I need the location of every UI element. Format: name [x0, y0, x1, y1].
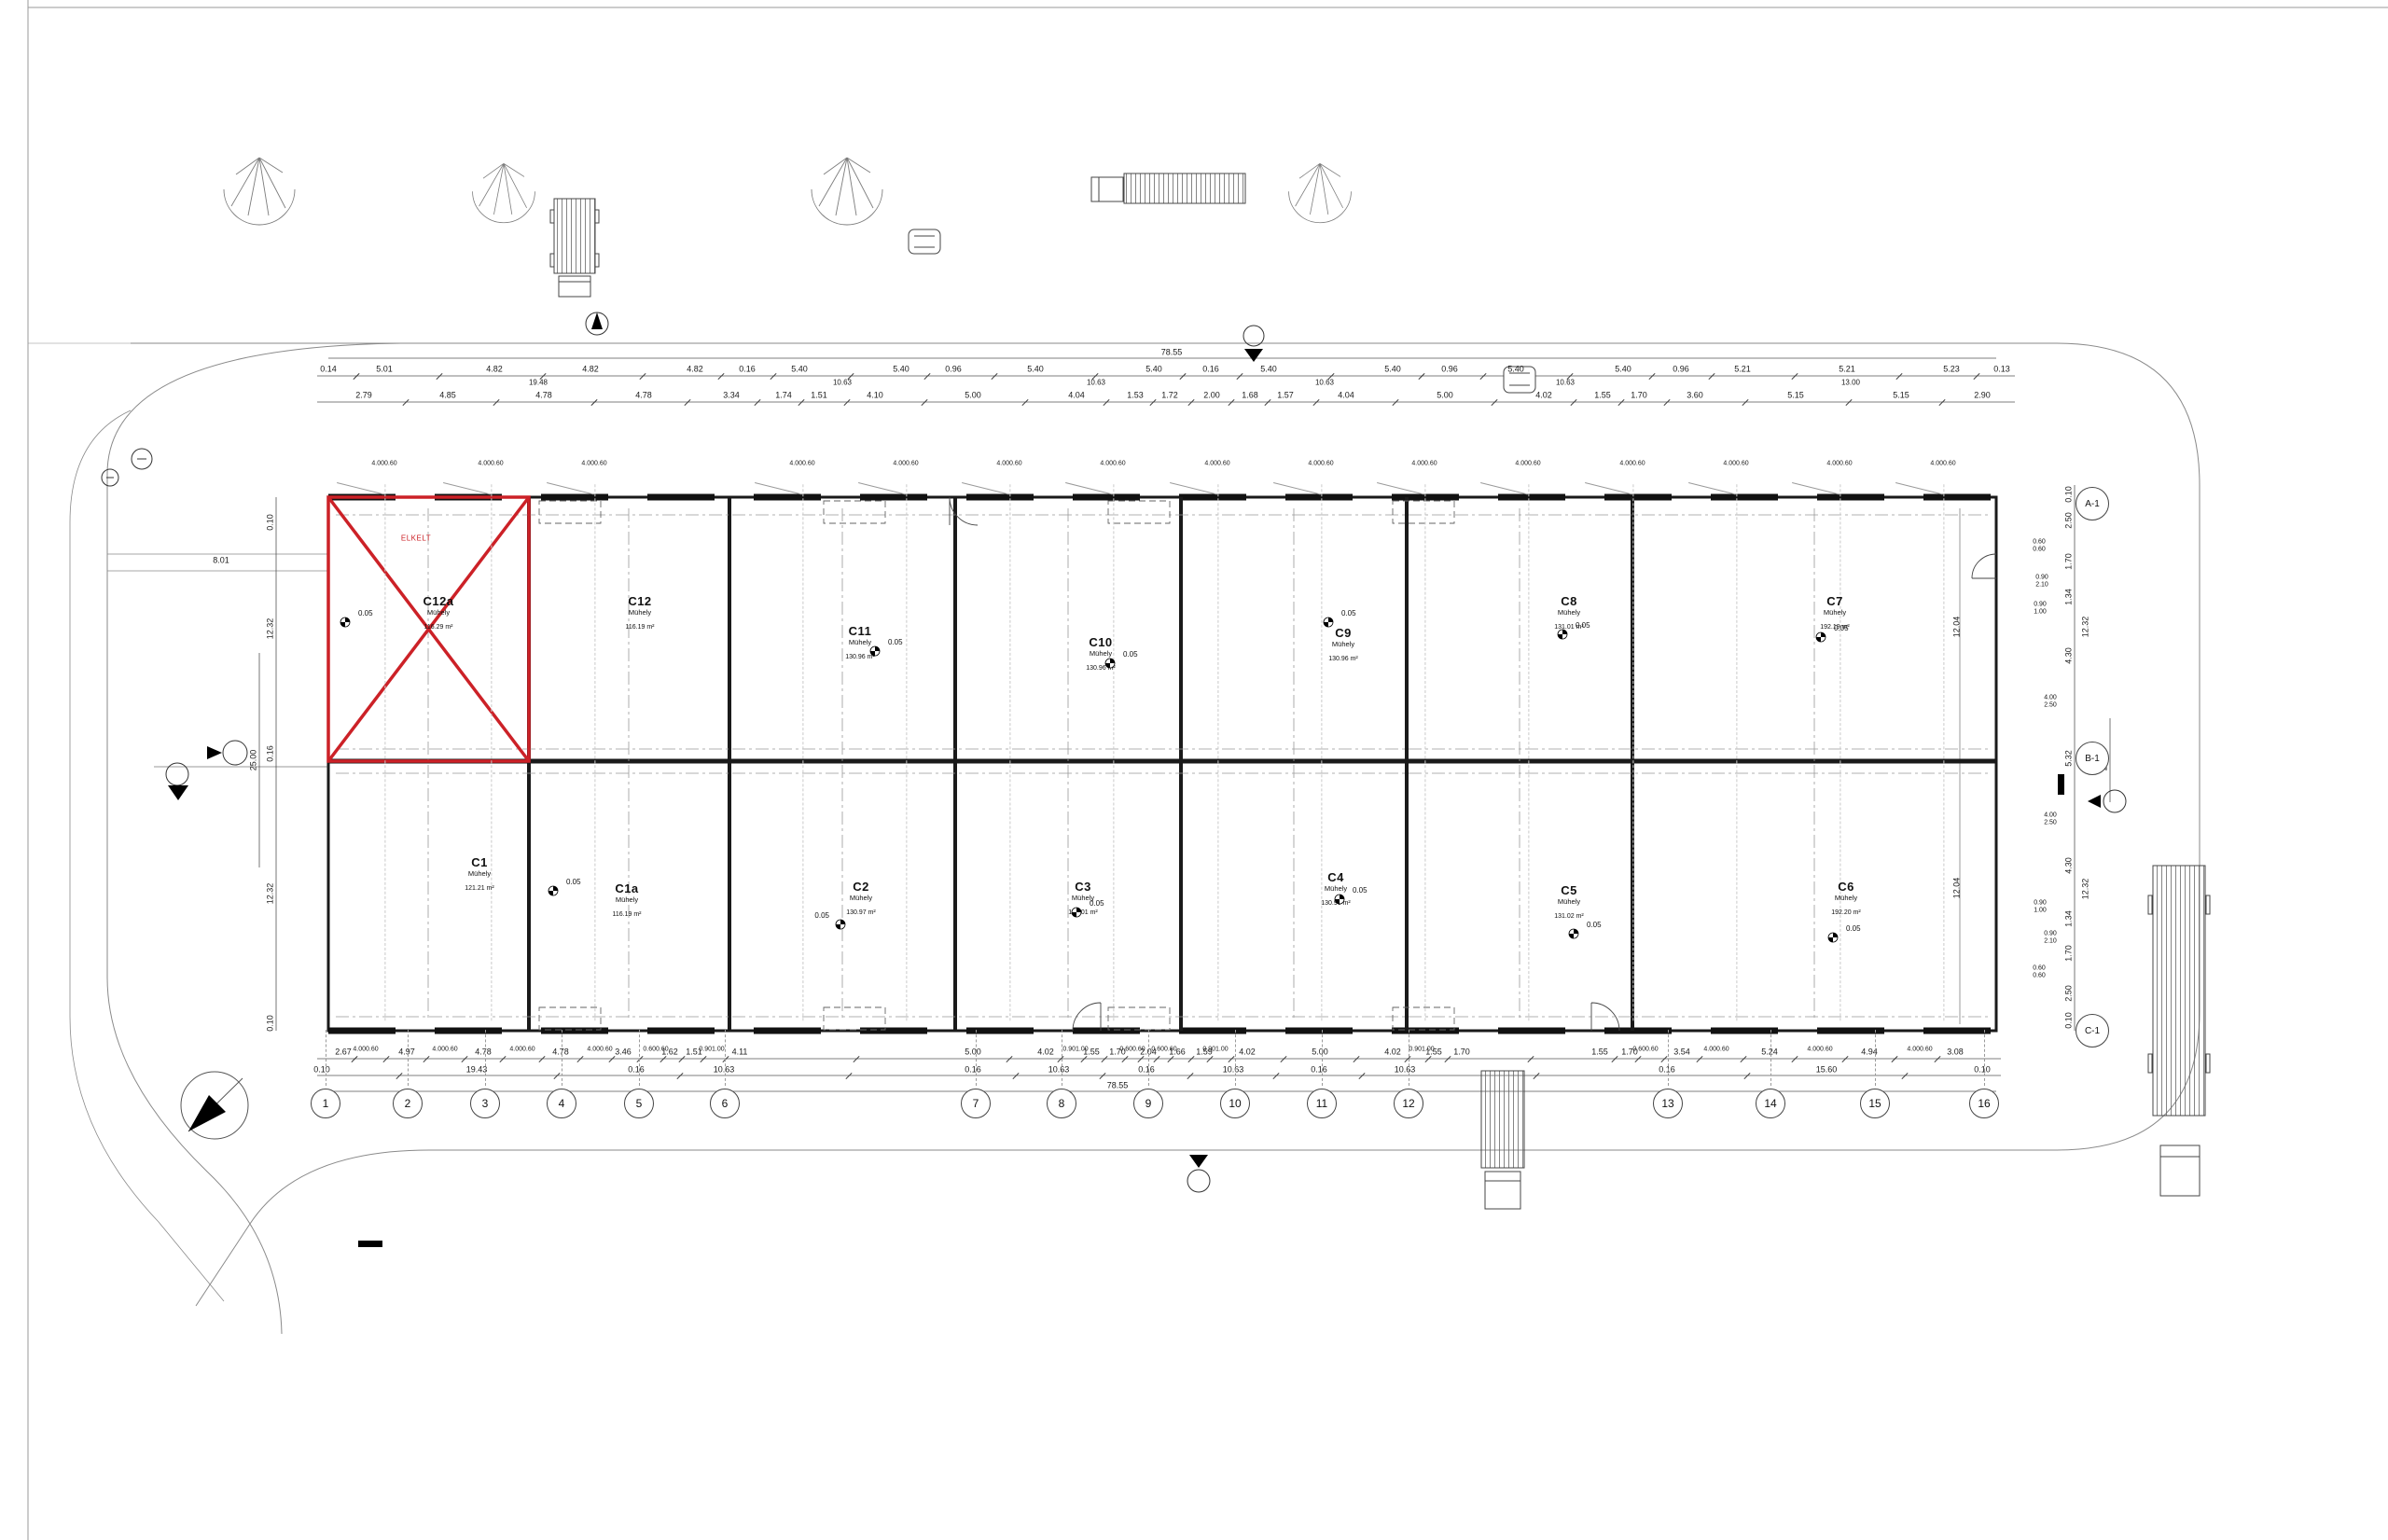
car-mid [1504, 367, 1535, 393]
truck-top [550, 199, 599, 297]
canopy-rects [539, 501, 1454, 1030]
interior-dashed-lines [336, 508, 1989, 1021]
truck-bottom [1481, 1071, 1524, 1209]
sold-label: ELKELT [401, 534, 431, 543]
page-frame [28, 0, 2388, 1540]
site-roads [28, 343, 2200, 1334]
truck-top-right [1091, 173, 1245, 203]
building-walls [328, 497, 1996, 1031]
truck-right [2148, 866, 2210, 1196]
section-markers [102, 312, 2126, 1247]
car-top [909, 229, 940, 254]
plan-linework [0, 0, 2388, 1540]
dimension-lines [259, 358, 2110, 1091]
door-swings [950, 497, 1996, 1031]
floor-plan-canvas: 0.145.014.824.824.820.165.405.400.965.40… [0, 0, 2388, 1540]
north-compass [181, 1072, 248, 1139]
